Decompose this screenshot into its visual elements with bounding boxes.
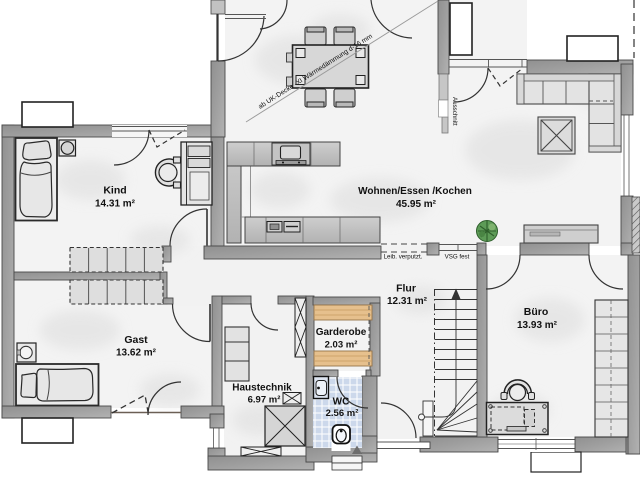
svg-text:Leib. verputzt.: Leib. verputzt.	[384, 254, 423, 261]
svg-text:14.31 m²: 14.31 m²	[95, 199, 136, 210]
svg-text:Büro: Büro	[524, 306, 549, 318]
svg-text:13.93 m²: 13.93 m²	[517, 320, 558, 331]
svg-text:2.56 m²: 2.56 m²	[326, 408, 359, 419]
svg-text:Kind: Kind	[103, 185, 126, 197]
svg-text:VSG fest: VSG fest	[445, 254, 470, 261]
svg-text:12.31 m²: 12.31 m²	[387, 296, 428, 307]
svg-text:Garderobe: Garderobe	[316, 327, 367, 338]
svg-text:2.03 m²: 2.03 m²	[325, 340, 358, 351]
svg-text:Flur: Flur	[396, 283, 416, 295]
svg-text:13.62 m²: 13.62 m²	[116, 348, 157, 359]
svg-text:Haustechnik: Haustechnik	[232, 383, 292, 394]
svg-text:Wohnen/Essen /Kochen: Wohnen/Essen /Kochen	[358, 186, 472, 197]
svg-text:6.97 m²: 6.97 m²	[248, 395, 281, 406]
svg-text:45.95 m²: 45.95 m²	[396, 199, 437, 210]
svg-text:Gast: Gast	[124, 334, 148, 346]
svg-text:Ausschnitt: Ausschnitt	[451, 97, 458, 126]
svg-text:WC: WC	[333, 397, 350, 408]
